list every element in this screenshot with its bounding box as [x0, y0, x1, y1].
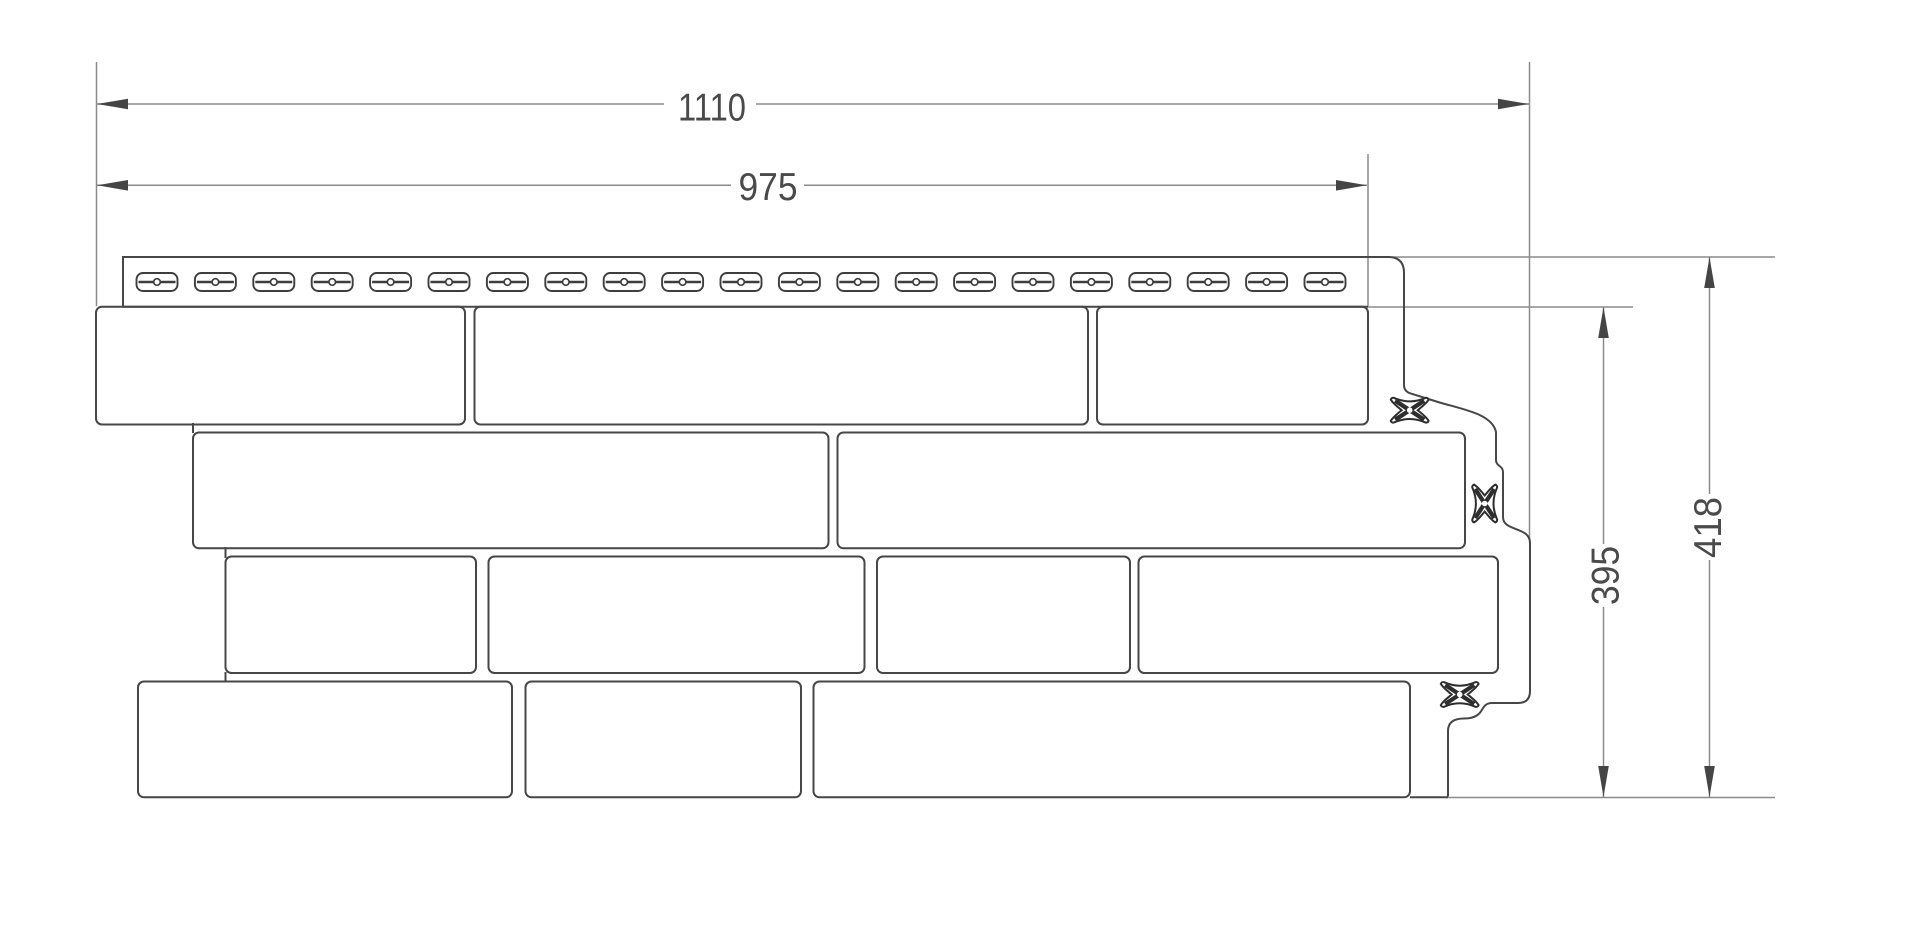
svg-text:975: 975	[738, 164, 797, 208]
svg-text:395: 395	[1583, 546, 1627, 605]
svg-text:1110: 1110	[678, 85, 746, 129]
svg-text:418: 418	[1687, 497, 1730, 558]
